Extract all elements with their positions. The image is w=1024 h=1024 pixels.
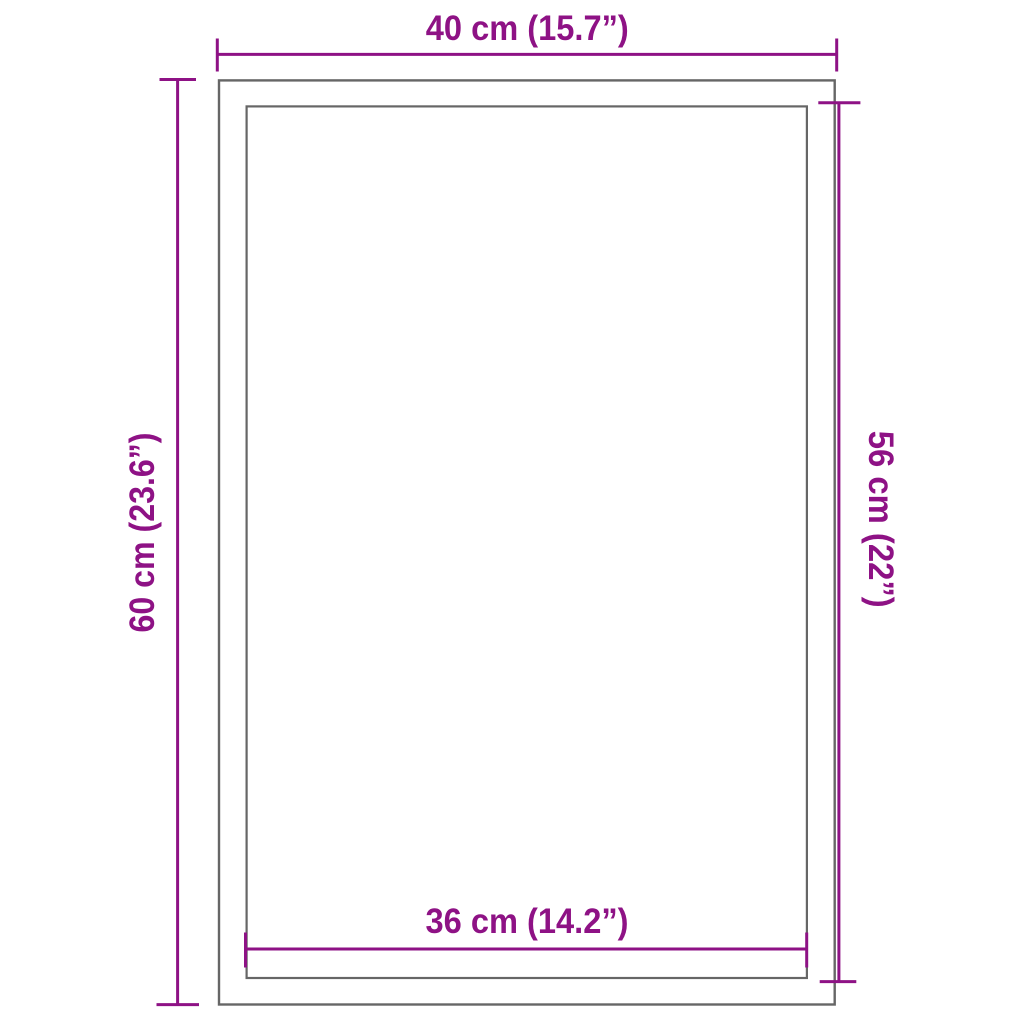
svg-text:60 cm (23.6”): 60 cm (23.6”) xyxy=(122,433,162,633)
svg-text:36 cm (14.2”): 36 cm (14.2”) xyxy=(426,901,629,941)
svg-text:40 cm (15.7”): 40 cm (15.7”) xyxy=(426,8,629,48)
svg-text:56 cm (22”): 56 cm (22”) xyxy=(861,431,901,608)
